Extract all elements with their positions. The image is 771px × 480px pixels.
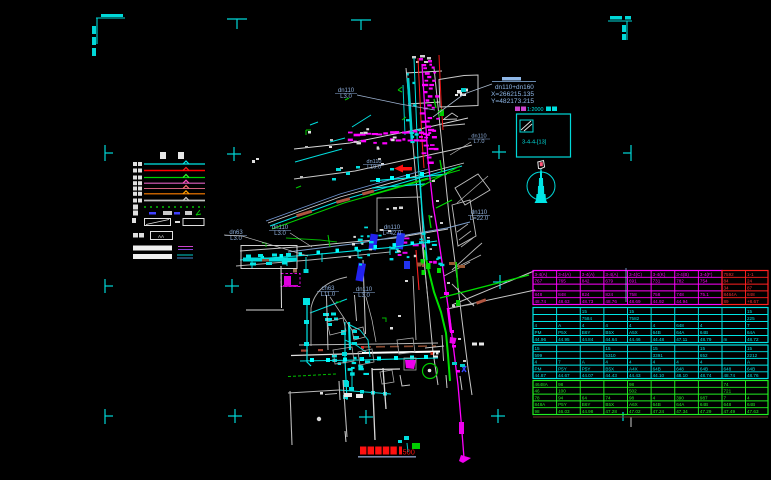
svg-text:4: 4 [653,360,656,365]
svg-text:74: 74 [724,382,730,387]
svg-text:7592: 7592 [724,272,735,277]
svg-text:4: 4 [629,323,632,328]
svg-text:3-4(C): 3-4(C) [629,272,642,277]
svg-text:848: 848 [535,292,543,297]
svg-text:L19.0: L19.0 [367,165,381,171]
svg-text:24: 24 [747,279,753,284]
svg-text:15: 15 [700,346,706,351]
svg-text:824: 824 [605,292,613,297]
svg-text:44.67: 44.67 [558,373,570,378]
svg-text:B6Y: B6Y [582,330,591,335]
svg-text:48.74: 48.74 [535,299,547,304]
svg-text:4: 4 [676,360,679,365]
svg-text:PM: PM [535,366,542,371]
svg-text:98: 98 [558,382,564,387]
svg-text:748: 748 [676,292,684,297]
svg-text:782: 782 [676,279,684,284]
svg-text:44.92: 44.92 [653,299,665,304]
svg-text:P5Y: P5Y [558,366,567,371]
svg-text:15: 15 [582,309,588,314]
svg-text:3-4(A): 3-4(A) [605,272,618,277]
svg-text:1:2000: 1:2000 [527,107,544,113]
svg-text:390: 390 [676,395,684,400]
svg-text:64A: 64A [747,330,756,335]
svg-text:987: 987 [700,395,708,400]
svg-text:5310: 5310 [605,353,616,358]
svg-text:648: 648 [676,366,684,371]
svg-text:691: 691 [629,279,637,284]
svg-text:98: 98 [629,382,635,387]
svg-text:648: 648 [724,402,732,407]
svg-text:4: 4 [629,360,632,365]
svg-text:15: 15 [747,346,753,351]
svg-text:44.95: 44.95 [558,337,570,342]
svg-text:679: 679 [605,279,613,284]
svg-text:842: 842 [582,279,590,284]
svg-text:4: 4 [535,323,538,328]
svg-text:47.11: 47.11 [676,337,688,342]
svg-text:15: 15 [605,346,611,351]
svg-text:L3.0: L3.0 [340,94,352,100]
svg-text:48.10: 48.10 [676,373,688,378]
svg-text:44.48: 44.48 [653,337,665,342]
svg-text:48.79: 48.79 [700,337,712,342]
svg-text:4648A: 4648A [535,382,549,387]
svg-text:4: 4 [535,360,538,365]
svg-text:3-4(A): 3-4(A) [535,272,548,277]
svg-text:721: 721 [724,389,732,394]
svg-text:B5X: B5X [605,402,614,407]
svg-text:47.02: 47.02 [629,409,641,414]
svg-text:A4X: A4X [629,366,638,371]
svg-text:98: 98 [535,409,541,414]
svg-text:4: 4 [653,395,656,400]
svg-text:64B: 64B [653,330,661,335]
svg-text:A6X: A6X [629,402,638,407]
svg-text:P5X: P5X [558,330,567,335]
svg-text:3-4(A): 3-4(A) [558,272,571,277]
svg-text:44.07: 44.07 [582,373,594,378]
svg-text:15: 15 [535,346,541,351]
svg-text:848: 848 [747,292,755,297]
svg-text:64: 64 [582,395,588,400]
svg-text:64B: 64B [700,402,708,407]
svg-text:84: 84 [724,279,730,284]
svg-text:46.03: 46.03 [558,409,570,414]
svg-text:3-4-4-[13]: 3-4-4-[13] [522,140,547,146]
svg-text:7: 7 [747,323,750,328]
svg-text:7: 7 [724,395,727,400]
svg-text:44.43: 44.43 [605,373,617,378]
svg-text:L=22.0: L=22.0 [470,216,489,222]
svg-text:754: 754 [700,279,708,284]
svg-text:dn110+dn160: dn110+dn160 [495,84,534,91]
svg-text:502: 502 [629,389,637,394]
svg-text:AA: AA [158,234,164,239]
svg-text:47.34: 47.34 [676,409,688,414]
svg-text:648: 648 [724,366,732,371]
svg-text:758: 758 [653,292,661,297]
svg-text:48.74: 48.74 [700,373,712,378]
svg-text:44.10: 44.10 [653,373,665,378]
svg-text:48.74: 48.74 [724,373,736,378]
svg-text:87: 87 [747,285,753,290]
svg-text:44.87: 44.87 [535,373,547,378]
svg-text:765: 765 [558,279,566,284]
svg-text:Y=482173.215: Y=482173.215 [491,98,534,105]
svg-text:225: 225 [747,316,755,321]
svg-text:89: 89 [724,299,730,304]
svg-text:64B: 64B [747,402,755,407]
svg-text:A5X: A5X [629,330,638,335]
svg-text:47.24: 47.24 [653,409,665,414]
svg-text:44.43: 44.43 [629,373,641,378]
svg-text:64B: 64B [700,366,708,371]
svg-text:767: 767 [535,279,543,284]
svg-text:48.63: 48.63 [558,299,570,304]
svg-text:4: 4 [700,323,703,328]
svg-text:44.94: 44.94 [676,299,688,304]
svg-text:4: 4 [605,360,608,365]
svg-text:64B: 64B [653,402,661,407]
svg-text:98: 98 [629,395,635,400]
svg-text:A: A [558,323,562,328]
svg-text:44.46: 44.46 [629,337,641,342]
svg-text:48.76: 48.76 [747,373,759,378]
svg-text:75.1: 75.1 [700,292,709,297]
svg-text:47.28: 47.28 [605,409,617,414]
svg-text:44.98: 44.98 [582,409,594,414]
svg-text:m: m [724,337,728,342]
svg-text:758: 758 [629,292,637,297]
svg-text:P5Y: P5Y [558,402,567,407]
svg-text:46: 46 [535,389,541,394]
svg-text:L3.0: L3.0 [230,236,242,242]
svg-text:A: A [747,360,751,365]
svg-text:3-4(F): 3-4(F) [700,272,713,277]
svg-text:47.49: 47.49 [724,409,736,414]
svg-text:652: 652 [700,353,708,358]
svg-text:48.72: 48.72 [747,337,759,342]
svg-text:L7.0: L7.0 [474,139,485,145]
svg-text:64B: 64B [747,366,755,371]
svg-text:2212: 2212 [747,353,758,358]
svg-text:L3.0: L3.0 [358,293,370,299]
svg-text:3391: 3391 [653,353,664,358]
svg-text:848A: 848A [535,402,547,407]
svg-text:64A: 64A [676,330,685,335]
svg-text:P5Y: P5Y [582,366,591,371]
svg-text:L=42.0: L=42.0 [383,231,402,237]
svg-text:7584: 7584 [582,316,593,321]
svg-text:48.73: 48.73 [582,299,594,304]
svg-text:64A: 64A [676,402,685,407]
svg-text:78: 78 [535,395,541,400]
svg-text:64B: 64B [653,366,661,371]
svg-text:PM: PM [535,330,542,335]
svg-text:48.76: 48.76 [605,299,617,304]
svg-text:4: 4 [582,323,585,328]
svg-text:848: 848 [558,292,566,297]
svg-text:4: 4 [700,360,703,365]
svg-text:3-4(K): 3-4(K) [653,272,666,277]
svg-text:3-4(B): 3-4(B) [676,272,689,277]
svg-text:47.63: 47.63 [747,409,759,414]
svg-text::500: :500 [401,448,415,457]
svg-text:B6Y: B6Y [582,402,591,407]
svg-text:1-1: 1-1 [747,272,754,277]
svg-text:3-4(A): 3-4(A) [582,272,595,277]
svg-text:15: 15 [629,309,635,314]
svg-text:94: 94 [558,395,564,400]
svg-text:731: 731 [653,279,661,284]
svg-text:B5X: B5X [605,330,614,335]
svg-text:48.69: 48.69 [629,299,641,304]
svg-text:4: 4 [653,323,656,328]
svg-text:74: 74 [605,395,611,400]
svg-text:15: 15 [747,309,753,314]
svg-text:L11.0: L11.0 [321,292,336,298]
svg-text:34: 34 [724,285,730,290]
svg-text:B5X: B5X [605,366,614,371]
svg-text:824: 824 [582,292,590,297]
svg-text:4: 4 [747,395,750,400]
svg-text:7582: 7582 [629,316,640,321]
svg-text:X=266215.135: X=266215.135 [491,91,534,98]
svg-text:47.29: 47.29 [700,409,712,414]
svg-text:44.64: 44.64 [605,337,617,342]
svg-text:100: 100 [558,389,566,394]
svg-text:64B: 64B [700,330,708,335]
svg-text:15: 15 [653,346,659,351]
svg-text:44.84: 44.84 [582,337,594,342]
svg-text:7: 7 [558,360,561,365]
svg-text:648: 648 [676,323,684,328]
svg-text:+8.67: +8.67 [747,299,759,304]
svg-text:599: 599 [535,353,543,358]
svg-text:A: A [582,360,586,365]
svg-text:8464A: 8464A [724,292,738,297]
svg-text:44.96: 44.96 [535,337,547,342]
svg-text:L3.0: L3.0 [274,231,286,237]
svg-text:4: 4 [605,323,608,328]
